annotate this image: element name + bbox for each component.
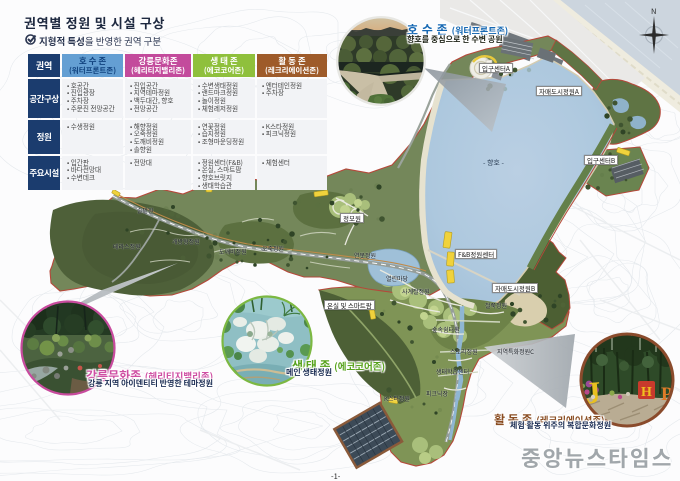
svg-text:N: N [651,6,656,17]
svg-text:H: H [641,381,652,401]
